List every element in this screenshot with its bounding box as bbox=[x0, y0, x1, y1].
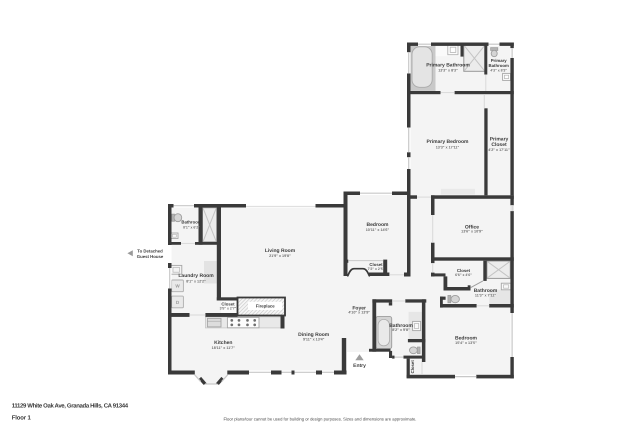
svg-text:4'3" x 8'3": 4'3" x 8'3" bbox=[490, 69, 507, 73]
svg-text:Fireplace: Fireplace bbox=[256, 303, 275, 308]
svg-text:13'6" x 10'9": 13'6" x 10'9" bbox=[461, 229, 483, 233]
svg-text:Primary Bedroom: Primary Bedroom bbox=[427, 139, 470, 145]
svg-text:Entry: Entry bbox=[353, 363, 366, 369]
svg-text:Bathroom: Bathroom bbox=[489, 63, 509, 68]
svg-text:11'3" x 7'11": 11'3" x 7'11" bbox=[475, 293, 496, 297]
svg-text:18'11" x 11'7": 18'11" x 11'7" bbox=[212, 346, 236, 350]
svg-text:4'10" x 13'9": 4'10" x 13'9" bbox=[348, 311, 370, 315]
svg-text:Closet: Closet bbox=[410, 360, 415, 374]
svg-text:13'3" x 8'3": 13'3" x 8'3" bbox=[438, 68, 458, 72]
svg-text:15'4" x 13'5": 15'4" x 13'5" bbox=[455, 341, 477, 345]
svg-text:9'11" x 13'4": 9'11" x 13'4" bbox=[303, 338, 325, 342]
svg-text:10'11" x 14'6": 10'11" x 14'6" bbox=[366, 228, 390, 232]
svg-text:Guest House: Guest House bbox=[137, 254, 164, 259]
svg-text:8'1" x 12'2": 8'1" x 12'2" bbox=[186, 280, 206, 284]
svg-text:4'2" x 17'11": 4'2" x 17'11" bbox=[488, 148, 510, 152]
svg-text:Bathroom: Bathroom bbox=[181, 220, 201, 225]
svg-text:Laundry Room: Laundry Room bbox=[178, 273, 214, 279]
svg-text:6'6" x 4'6": 6'6" x 4'6" bbox=[455, 273, 472, 277]
svg-text:21'9" x 19'8": 21'9" x 19'8" bbox=[269, 254, 291, 258]
svg-text:8'2" x 9'8": 8'2" x 9'8" bbox=[392, 328, 410, 332]
svg-text:To Detached: To Detached bbox=[137, 248, 163, 253]
svg-text:11129 White Oak Ave, Granada H: 11129 White Oak Ave, Granada Hills, CA 9… bbox=[12, 403, 129, 410]
svg-text:7'2" x 2'5": 7'2" x 2'5" bbox=[368, 267, 385, 271]
svg-text:W: W bbox=[175, 284, 180, 289]
svg-text:8'1" x 6'2": 8'1" x 6'2" bbox=[183, 225, 200, 229]
svg-text:Floor plans/tour cannot be use: Floor plans/tour cannot be used for buil… bbox=[224, 416, 417, 421]
svg-text:13'3" x 17'11": 13'3" x 17'11" bbox=[436, 145, 460, 149]
svg-text:Floor 1: Floor 1 bbox=[12, 414, 32, 421]
svg-text:3'5" x 2'7": 3'5" x 2'7" bbox=[220, 307, 237, 311]
